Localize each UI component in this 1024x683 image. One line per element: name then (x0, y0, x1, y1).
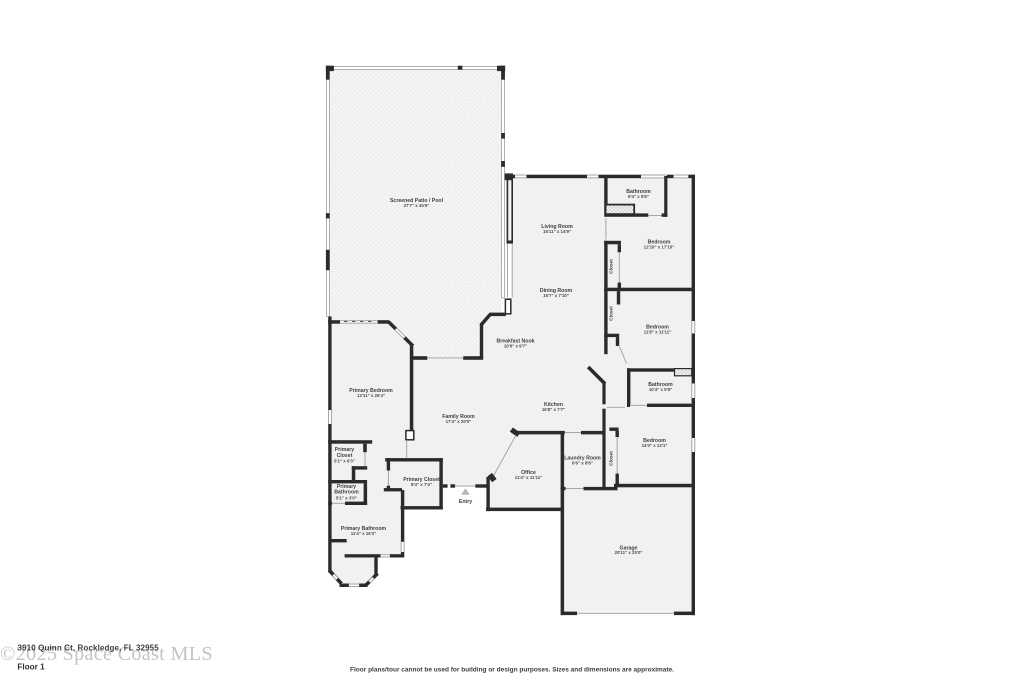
svg-text:Closet: Closet (608, 259, 614, 274)
svg-text:6'6" x 8'6": 6'6" x 8'6" (572, 461, 593, 466)
svg-text:17'4" x 20'0": 17'4" x 20'0" (446, 419, 472, 424)
svg-text:15'7" x 7'10": 15'7" x 7'10" (543, 293, 569, 298)
svg-text:20'11" x 20'0": 20'11" x 20'0" (615, 550, 643, 555)
svg-text:10'4" x 5'8": 10'4" x 5'8" (649, 387, 672, 392)
svg-text:12'11" x 26'4": 12'11" x 26'4" (357, 393, 385, 398)
svg-text:5'1" x 3'0": 5'1" x 3'0" (336, 496, 357, 501)
svg-text:12'10" x 17'10": 12'10" x 17'10" (644, 245, 675, 250)
svg-text:Floor plans/tour cannot be use: Floor plans/tour cannot be used for buil… (350, 666, 674, 673)
svg-text:11'8" x 11'11": 11'8" x 11'11" (644, 330, 672, 335)
svg-text:10'6" x 9'7": 10'6" x 9'7" (504, 344, 527, 349)
svg-text:8'4" x 7'4": 8'4" x 7'4" (411, 482, 432, 487)
svg-text:Entry: Entry (459, 499, 472, 505)
svg-text:11'4" x 11'11": 11'4" x 11'11" (515, 475, 543, 480)
svg-text:Closet: Closet (608, 306, 614, 321)
svg-text:5'1" x 6'3": 5'1" x 6'3" (334, 459, 355, 464)
svg-text:9'4" x 5'6": 9'4" x 5'6" (628, 194, 649, 199)
svg-text:15'11" x 14'9": 15'11" x 14'9" (543, 229, 571, 234)
svg-text:3910 Quinn Ct, Rockledge, FL 3: 3910 Quinn Ct, Rockledge, FL 32955 (18, 643, 160, 652)
svg-text:14'0" x 12'1": 14'0" x 12'1" (642, 443, 668, 448)
svg-text:27'7" x 45'6": 27'7" x 45'6" (404, 203, 430, 208)
svg-text:Closet: Closet (608, 451, 614, 466)
svg-text:16'8" x 7'7": 16'8" x 7'7" (542, 407, 565, 412)
svg-text:Floor 1: Floor 1 (17, 662, 45, 671)
svg-text:11'4" x 16'2": 11'4" x 16'2" (351, 531, 377, 536)
